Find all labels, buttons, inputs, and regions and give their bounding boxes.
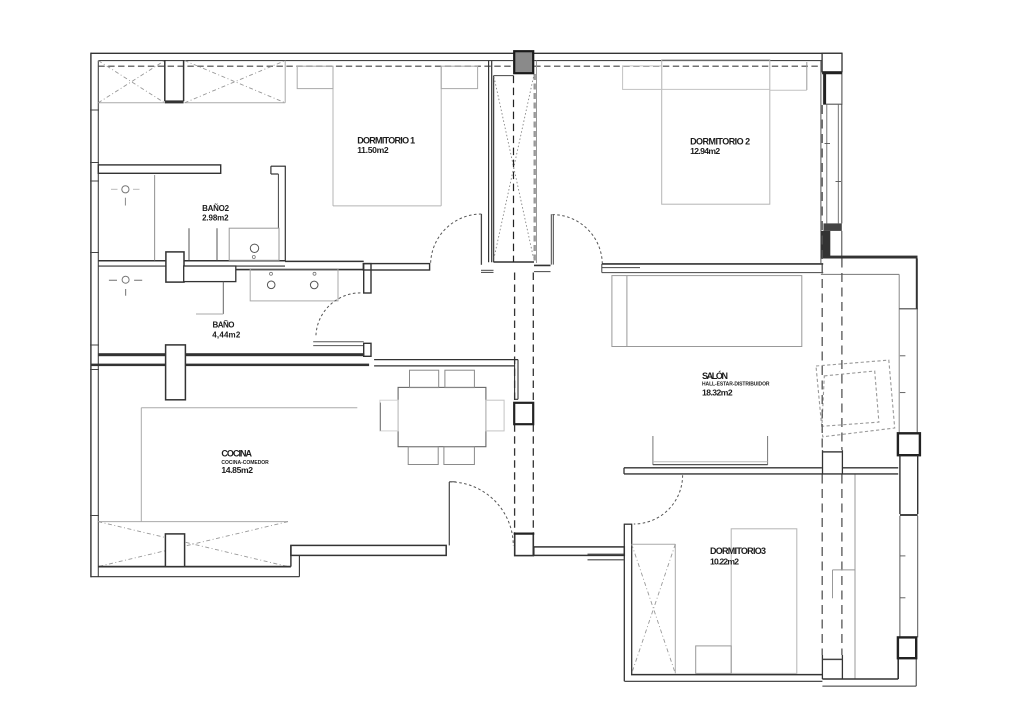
svg-text:DORMITORIO 2: DORMITORIO 2 xyxy=(690,136,750,146)
svg-text:BAÑO2: BAÑO2 xyxy=(202,204,230,213)
svg-text:DORMITORIO3: DORMITORIO3 xyxy=(710,546,766,556)
svg-text:14.85m2: 14.85m2 xyxy=(221,465,253,475)
svg-text:SALÓN: SALÓN xyxy=(702,370,728,381)
svg-text:COCINA: COCINA xyxy=(221,449,252,459)
svg-text:18.32m2: 18.32m2 xyxy=(702,388,733,398)
svg-text:2.98m2: 2.98m2 xyxy=(202,213,229,222)
svg-text:10.22m2: 10.22m2 xyxy=(710,557,739,567)
svg-text:HALL-ESTAR-DISTRIBUIDOR: HALL-ESTAR-DISTRIBUIDOR xyxy=(702,382,770,388)
svg-text:12.94m2: 12.94m2 xyxy=(690,146,720,156)
svg-text:11.50m2: 11.50m2 xyxy=(357,145,389,155)
svg-text:BAÑO: BAÑO xyxy=(213,320,235,329)
svg-text:4,44m2: 4,44m2 xyxy=(212,331,241,340)
